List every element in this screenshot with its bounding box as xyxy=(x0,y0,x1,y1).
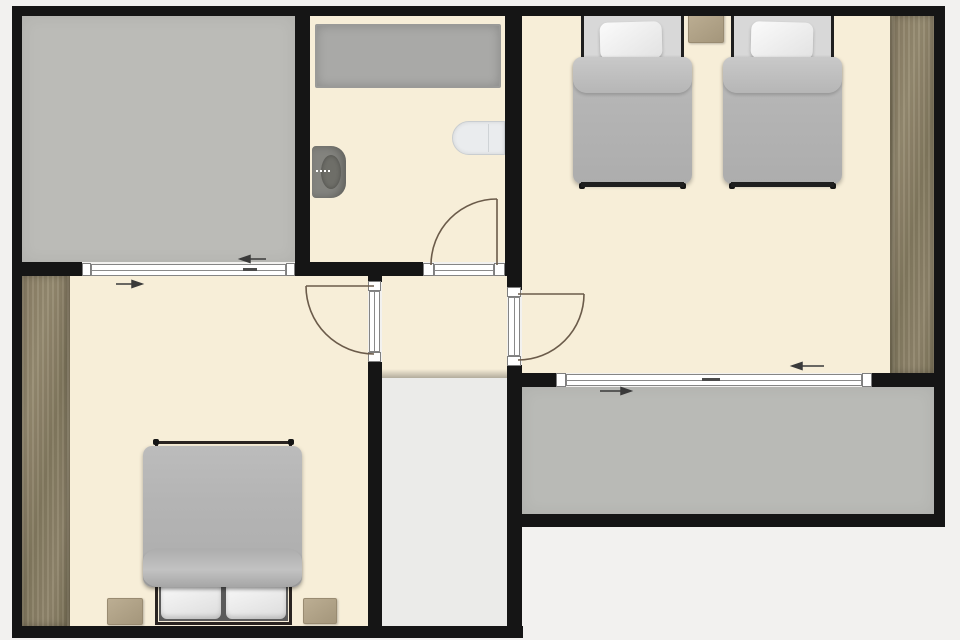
wall-bottom xyxy=(12,626,523,638)
nightstand-twin-room xyxy=(688,12,724,43)
wall-bathroom-bedroom xyxy=(505,6,522,276)
room-hallway xyxy=(382,276,507,382)
washbasin-seam xyxy=(488,124,489,152)
bed-foot-bar xyxy=(581,182,684,187)
double-bed xyxy=(155,441,292,625)
wardrobe-twin-room xyxy=(890,16,934,373)
door-jamb xyxy=(368,352,381,362)
wall-hall-right-upper xyxy=(507,262,522,290)
slider-jamb xyxy=(862,373,872,387)
nightstand-double-left xyxy=(107,598,143,625)
duvet xyxy=(573,57,692,184)
bed-foot-bar xyxy=(731,182,834,187)
toilet-flush-buttons xyxy=(316,170,318,172)
bed-corner-knob xyxy=(288,439,294,445)
toilet-bowl xyxy=(321,155,341,189)
wall-hall-right-lower xyxy=(507,365,522,638)
pillow xyxy=(600,21,663,60)
slider-jamb xyxy=(556,373,566,387)
door-jamb xyxy=(368,281,381,291)
slider-jamb xyxy=(286,263,295,276)
door-jamb xyxy=(507,287,521,297)
wardrobe-double-room xyxy=(22,276,70,626)
floor-plan xyxy=(0,0,960,640)
bed-corner-knob xyxy=(153,439,159,445)
door-jamb xyxy=(507,356,521,366)
washbasin xyxy=(452,121,505,155)
wall-hall-left-upper xyxy=(368,262,382,282)
wall-top xyxy=(12,6,945,16)
slider-handle xyxy=(243,268,257,271)
duvet-fold xyxy=(723,57,842,93)
toilet xyxy=(312,146,346,198)
wall-mid-b xyxy=(295,262,423,276)
single-bed-2 xyxy=(731,13,834,187)
pillow xyxy=(226,582,286,619)
duvet xyxy=(723,57,842,184)
door-jamb xyxy=(494,263,505,276)
balcony xyxy=(522,387,934,514)
wall-hall-left-lower xyxy=(368,362,382,638)
shower-tray xyxy=(315,24,501,88)
wall-right xyxy=(934,6,945,527)
single-bed-1 xyxy=(581,13,684,187)
door-opening-bedroom-double xyxy=(369,291,380,352)
slider-handle xyxy=(702,378,720,381)
door-opening-bathroom xyxy=(434,264,494,276)
wall-twin-bottom-a xyxy=(522,373,558,387)
wall-terrace-bathroom xyxy=(295,6,310,276)
wall-mid-a xyxy=(12,262,82,276)
wall-left xyxy=(12,6,22,638)
stairs-top-shadow xyxy=(382,369,507,378)
duvet xyxy=(143,446,302,587)
nightstand-double-right xyxy=(303,598,337,624)
room-terrace xyxy=(22,16,295,262)
wall-balcony-bottom xyxy=(522,514,945,527)
slider-jamb xyxy=(82,263,91,276)
duvet-fold xyxy=(143,549,302,587)
wall-twin-bottom-b xyxy=(872,373,934,387)
door-jamb xyxy=(423,263,434,276)
door-opening-bedroom-twin xyxy=(508,297,520,356)
pillow xyxy=(751,21,814,60)
staircase xyxy=(382,378,507,626)
pillow xyxy=(161,582,221,619)
duvet-fold xyxy=(573,57,692,93)
